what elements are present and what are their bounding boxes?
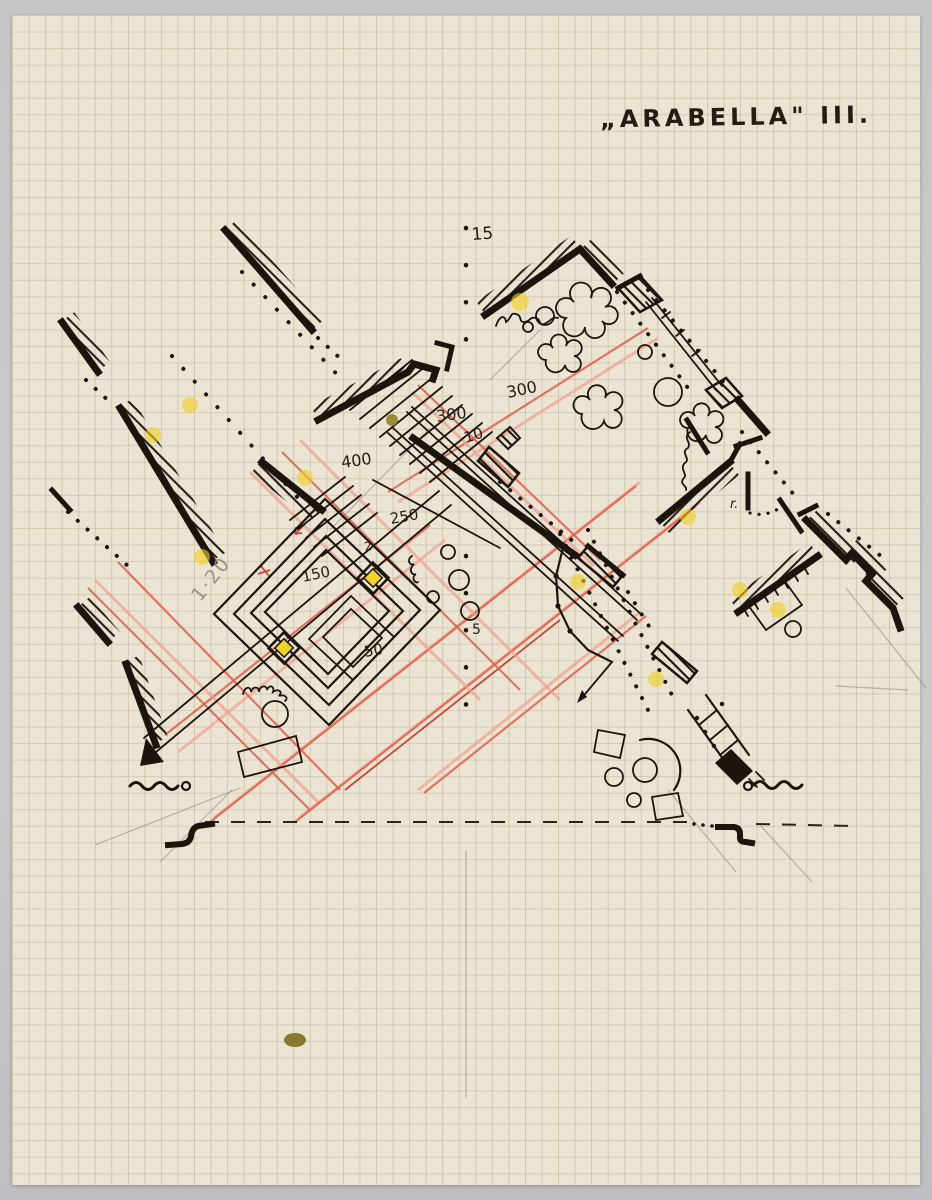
label-150: 150	[300, 562, 332, 586]
label-300: 300	[505, 377, 539, 402]
stone-slab	[652, 793, 683, 820]
label-room: r.	[730, 497, 738, 512]
monument-plan	[214, 499, 440, 725]
stone-slab	[594, 730, 625, 758]
plant-scribble	[409, 556, 418, 582]
walls	[52, 224, 900, 766]
label-10: 10	[462, 424, 486, 447]
wall-segment	[225, 230, 312, 330]
wall-segment	[800, 506, 816, 514]
door-jamb	[437, 343, 452, 369]
olive-stain	[284, 1033, 306, 1047]
wall-segment	[780, 500, 801, 531]
wall-segment	[52, 490, 70, 510]
arrow-head	[577, 690, 587, 703]
wall-segment	[738, 400, 766, 432]
wall-segment	[120, 408, 213, 562]
wall-pier	[497, 427, 520, 449]
section-bracket-right	[718, 827, 752, 843]
drawing-title: „ARABELLA" III.	[600, 101, 880, 134]
plan-drawing: 15 300 300 10 400 250 2 150 50 5 r.	[0, 0, 932, 1200]
wall-segment	[806, 520, 900, 628]
label-250: 250	[389, 505, 420, 528]
wall-segment	[687, 420, 707, 452]
olive-dot	[386, 414, 398, 426]
label-15: 15	[471, 224, 494, 245]
door-swing-dots	[750, 509, 778, 514]
tree-cloud	[538, 334, 582, 372]
label-400: 400	[340, 449, 373, 472]
wavy-boundary-marks	[130, 782, 802, 791]
tree-cloud	[556, 282, 618, 338]
section-bracket-left	[168, 824, 212, 845]
tree-cloud	[574, 385, 623, 429]
wall-pier	[618, 276, 662, 312]
tree-scribble	[682, 432, 690, 490]
label-5: 5	[472, 622, 481, 638]
section-line	[168, 822, 855, 845]
label-50: 50	[363, 640, 385, 661]
ladder-stair	[688, 695, 764, 787]
